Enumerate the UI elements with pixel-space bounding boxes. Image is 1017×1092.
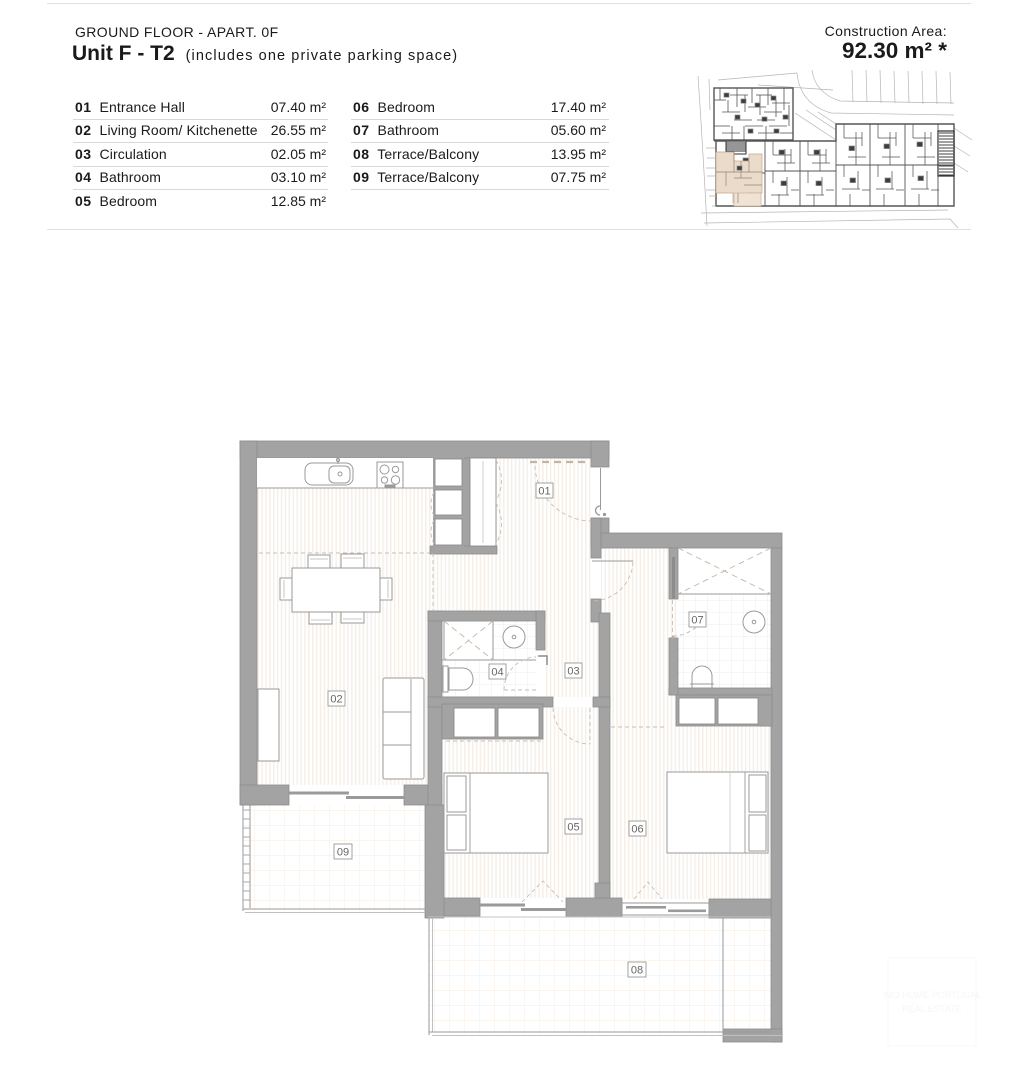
svg-text:01: 01 bbox=[538, 486, 550, 498]
svg-text:08: 08 bbox=[631, 965, 643, 977]
svg-text:02: 02 bbox=[330, 694, 342, 706]
svg-text:03: 03 bbox=[567, 666, 579, 678]
svg-text:IMO HOME PORTUGAL: IMO HOME PORTUGAL bbox=[883, 990, 981, 1000]
svg-text:REAL ESTATE: REAL ESTATE bbox=[902, 1004, 961, 1014]
svg-text:05: 05 bbox=[567, 822, 579, 834]
svg-text:09: 09 bbox=[337, 847, 349, 859]
svg-text:06: 06 bbox=[631, 824, 643, 836]
svg-text:04: 04 bbox=[491, 667, 503, 679]
svg-text:07: 07 bbox=[691, 615, 703, 627]
